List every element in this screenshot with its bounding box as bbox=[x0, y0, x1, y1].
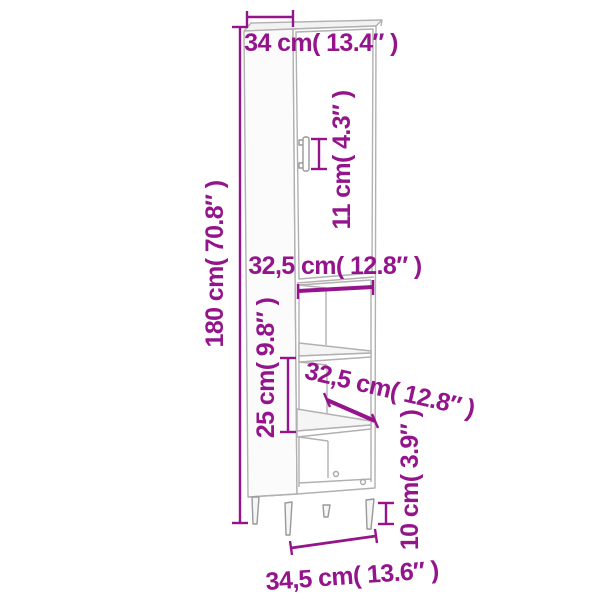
dim-cap bbox=[375, 529, 377, 543]
leg-back-middle bbox=[323, 505, 330, 517]
label-handle-height: 11 cm( 4.3″ ) bbox=[328, 90, 356, 229]
dim-total-width bbox=[290, 529, 377, 555]
cabinet-top-back-edge bbox=[381, 20, 382, 26]
cabinet-legs bbox=[252, 497, 374, 535]
dim-leg-height bbox=[378, 503, 394, 524]
label-shelf-spacing: 25 cm( 9.8″ ) bbox=[252, 298, 280, 439]
label-top-depth: 34 cm( 13.4″ ) bbox=[244, 29, 398, 57]
label-total-width: 34,5 cm( 13.6″ ) bbox=[265, 556, 440, 596]
diagram-canvas: 34 cm( 13.4″ ) 180 cm( 70.8″ ) 11 cm( 4.… bbox=[0, 0, 600, 600]
leg-front-right bbox=[366, 499, 374, 529]
label-leg-height: 10 cm( 3.9″ ) bbox=[396, 410, 424, 551]
label-total-height: 180 cm( 70.8″ ) bbox=[201, 180, 229, 347]
product-dimension-diagram: 34 cm( 13.4″ ) 180 cm( 70.8″ ) 11 cm( 4.… bbox=[0, 0, 600, 600]
label-inner-width: 32,5 cm( 12.8″ ) bbox=[248, 252, 422, 280]
handle-bar bbox=[303, 137, 309, 171]
dim-line bbox=[291, 536, 376, 548]
leg-back-left bbox=[252, 497, 259, 524]
dim-cap bbox=[290, 541, 292, 555]
leg-front-left bbox=[285, 502, 292, 535]
